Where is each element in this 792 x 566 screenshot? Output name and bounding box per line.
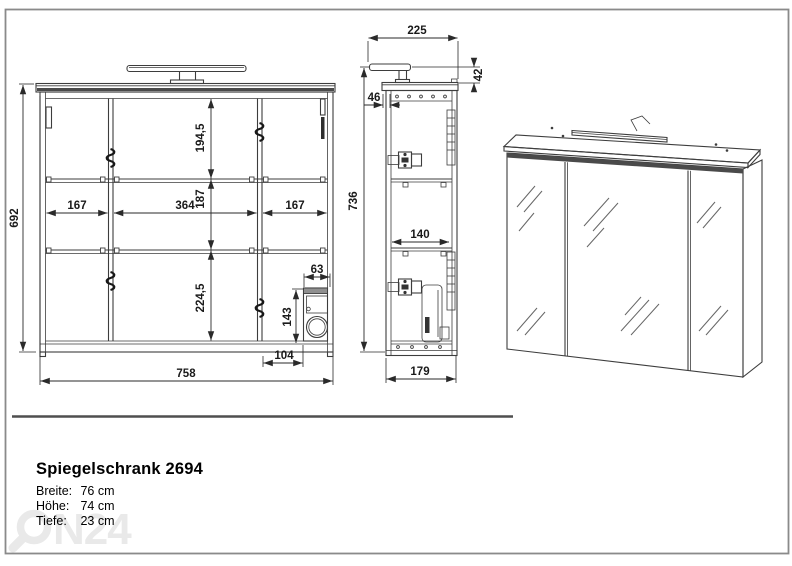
dim-comp-right: 167 xyxy=(285,200,304,212)
spec-label: Tiefe: xyxy=(36,514,77,529)
dim-depth-with-lamp: 225 xyxy=(407,25,427,37)
shelf-clips xyxy=(47,177,326,253)
dim-socket-offset: 104 xyxy=(274,350,294,362)
dim-lamp-height: 42 xyxy=(473,69,485,82)
spec-row-width: Breite: 76 cm xyxy=(36,484,203,499)
spec-value: 23 cm xyxy=(80,514,114,528)
dim-total-height: 736 xyxy=(348,191,360,210)
dim-front-height: 692 xyxy=(9,208,21,227)
screw-holes-bottom xyxy=(397,346,442,349)
dim-front-gap: 46 xyxy=(368,92,381,104)
product-info-block: Spiegelschrank 2694 Breite: 76 cm Höhe: … xyxy=(36,460,203,529)
dim-comp-left: 167 xyxy=(67,200,86,212)
mirror-door-dividers xyxy=(565,162,691,371)
product-title: Spiegelschrank 2694 xyxy=(36,460,203,479)
top-panel-front xyxy=(36,84,335,93)
socket-outlet xyxy=(307,317,328,338)
cabinet-front-face xyxy=(507,153,743,377)
spec-label: Breite: xyxy=(36,484,77,499)
dim-section-top: 194,5 xyxy=(195,123,207,152)
light-bar-3d xyxy=(572,116,667,142)
dim-section-middle: 187 xyxy=(195,189,207,208)
front-view-dimensions: 692 194,5 187 224,5 167 364 167 63 143 1… xyxy=(9,84,333,385)
shelves-front xyxy=(46,177,328,254)
screw-holes-top xyxy=(396,95,447,98)
mirror-reflection-marks xyxy=(517,186,728,335)
hinge-lower xyxy=(388,279,422,295)
dim-inner-depth: 140 xyxy=(410,229,429,241)
dim-front-width: 758 xyxy=(176,368,196,380)
dim-side-depth: 179 xyxy=(410,366,429,378)
dim-section-bottom: 224,5 xyxy=(195,283,207,312)
cabinet-side-face xyxy=(743,160,762,377)
door-handle-left xyxy=(46,107,52,128)
lamp-front xyxy=(127,66,246,84)
cabinet-body-side xyxy=(386,91,457,356)
spec-value: 74 cm xyxy=(80,499,114,513)
dim-socket-width: 63 xyxy=(311,264,324,276)
hinge-marks-front xyxy=(107,123,264,317)
technical-drawing-sheet: 692 194,5 187 224,5 167 364 167 63 143 1… xyxy=(0,0,792,566)
cable-template xyxy=(422,285,449,342)
socket-box xyxy=(304,288,328,341)
top-panel-side xyxy=(382,79,458,91)
hinge-upper xyxy=(388,152,422,168)
mounting-rail-lower xyxy=(447,252,455,310)
lamp-side xyxy=(370,64,411,83)
dim-socket-height: 143 xyxy=(282,307,294,326)
spec-row-height: Höhe: 74 cm xyxy=(36,499,203,514)
perspective-view xyxy=(504,116,762,377)
spec-value: 76 cm xyxy=(80,484,114,498)
spec-label: Höhe: xyxy=(36,499,77,514)
dim-comp-center: 364 xyxy=(175,200,195,212)
door-damper-right xyxy=(321,99,326,139)
side-view-dimensions: 225 42 46 736 140 179 xyxy=(348,25,485,383)
mounting-rail-upper xyxy=(447,110,455,165)
spec-row-depth: Tiefe: 23 cm xyxy=(36,514,203,529)
